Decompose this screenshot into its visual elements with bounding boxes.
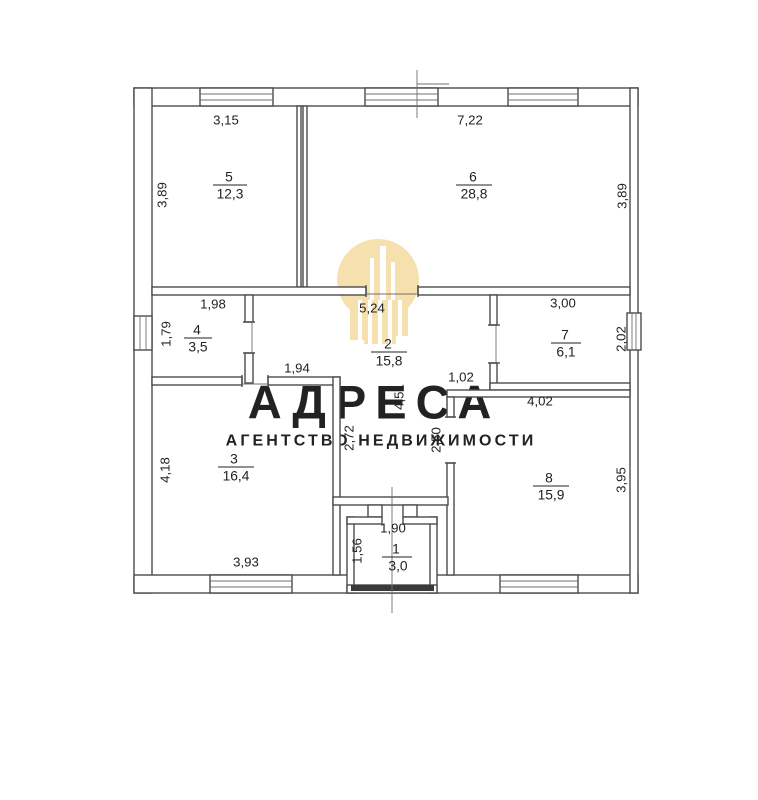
room-1-area: 3,0: [388, 559, 408, 574]
logo-trim: [396, 336, 408, 348]
room-8-number: 8: [545, 471, 553, 486]
wall-vestibule-top-right: [403, 517, 437, 524]
dim-room5-left: 3,89: [155, 182, 170, 208]
wall-room7-left-upper: [490, 295, 497, 325]
watermark-tagline-text: АГЕНТСТВО НЕДВИЖИМОСТИ: [226, 433, 537, 450]
room-1-number: 1: [392, 542, 400, 557]
dim-corridor-step: 1,02: [448, 370, 474, 385]
dim-corridor-right-vertical: 2,50: [429, 427, 444, 453]
dim-room3-left: 4,18: [158, 457, 173, 483]
room-6-label: 6 28,8: [456, 170, 492, 202]
room-5-label: 5 12,3: [213, 170, 247, 202]
logo-trim: [350, 340, 364, 348]
room-8-label: 8 15,9: [533, 471, 569, 503]
dim-room4-left: 1,79: [159, 321, 174, 347]
window-top-2: [365, 88, 438, 106]
dim-room1-left: 1,56: [350, 538, 365, 564]
wall-room3-top-right: [268, 377, 340, 385]
wall-room7-bottom: [490, 383, 630, 390]
dim-room5-top: 3,15: [213, 113, 239, 128]
watermark: АДРЕСА АГЕНТСТВО НЕДВИЖИМОСТИ: [226, 239, 537, 450]
room-7-number: 7: [561, 328, 569, 343]
room-4-label: 4 3,5: [184, 323, 212, 355]
window-bottom-1: [210, 575, 292, 593]
wall-middle-right: [418, 287, 630, 295]
floorplan-image: АДРЕСА АГЕНТСТВО НЕДВИЖИМОСТИ: [0, 0, 758, 800]
dim-room1-top: 1,90: [380, 521, 406, 536]
room-3-number: 3: [230, 452, 238, 467]
dim-corridor-neck: 1,94: [284, 361, 310, 376]
dim-room8-right: 3,95: [614, 467, 629, 493]
room-8-area: 15,9: [538, 488, 565, 503]
dim-corridor-top: 5,24: [359, 301, 385, 316]
room-2-number: 2: [384, 337, 392, 352]
dim-room7-right: 2,02: [614, 326, 629, 352]
wall-vestibule-right: [430, 517, 437, 593]
wall-room3-right: [333, 377, 340, 575]
window-bottom-2: [500, 575, 578, 593]
vestibule-door-jamb-left: [368, 505, 382, 517]
dim-room4-top: 1,98: [200, 297, 226, 312]
wall-room4-right-upper: [245, 295, 253, 322]
wall-vestibule-top-left: [347, 517, 382, 524]
dim-room6-right: 3,89: [615, 183, 630, 209]
room-3-area: 16,4: [223, 469, 250, 484]
dim-room7-top: 3,00: [550, 296, 576, 311]
wall-room4-right-lower: [245, 353, 253, 383]
logo-slit: [380, 246, 386, 300]
room-7-label: 7 6,1: [551, 328, 581, 360]
floor-plan-svg: АДРЕСА АГЕНТСТВО НЕДВИЖИМОСТИ: [0, 0, 758, 800]
window-right-1: [627, 313, 641, 350]
entrance-door-threshold: [351, 585, 434, 591]
wall-room3-top-left: [152, 377, 242, 385]
wall-room5-room6-a: [297, 106, 301, 287]
window-top-1: [200, 88, 273, 106]
dim-room6-top: 7,22: [457, 113, 483, 128]
room-3-label: 3 16,4: [218, 452, 254, 484]
dim-corridor-left-vertical: 2,72: [342, 425, 357, 451]
room-4-area: 3,5: [188, 340, 208, 355]
wall-room8-left-upper: [447, 397, 454, 417]
wall-room8-left-lower: [447, 463, 454, 575]
window-left-1: [134, 316, 152, 350]
wall-middle-left: [152, 287, 366, 295]
dim-corridor-mid-vertical: 4,51: [392, 384, 407, 410]
vestibule-door-jamb-right: [403, 505, 417, 517]
room-7-area: 6,1: [556, 345, 575, 360]
room-6-area: 28,8: [461, 187, 488, 202]
room-5-number: 5: [225, 170, 233, 185]
room-4-number: 4: [193, 323, 201, 338]
room-2-area: 15,8: [376, 354, 403, 369]
room-5-area: 12,3: [217, 187, 244, 202]
dim-room8-top: 4,02: [527, 394, 553, 409]
window-top-3: [508, 88, 578, 106]
wall-corridor-bottom: [333, 497, 448, 505]
dim-room3-bottom: 3,93: [233, 555, 259, 570]
wall-room5-room6-b: [303, 106, 307, 287]
room-6-number: 6: [469, 170, 477, 185]
